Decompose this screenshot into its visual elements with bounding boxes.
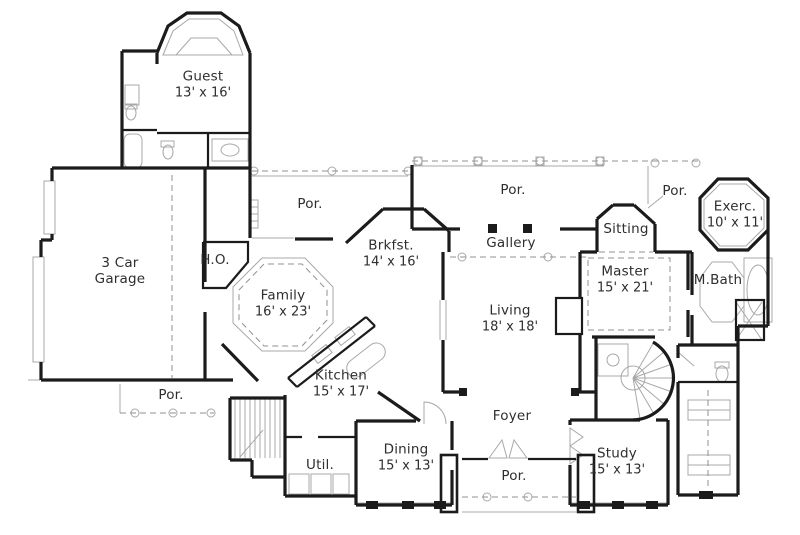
room-name: Dining [378, 442, 434, 458]
room-name: Living [482, 303, 538, 319]
room-dims: 15' x 13' [589, 462, 645, 477]
room-label-guest: Guest 13' x 16' [175, 69, 231, 100]
fireplace-icon [556, 298, 582, 334]
room-name: Foyer [493, 409, 531, 425]
room-dims: 13' x 16' [175, 85, 231, 100]
room-dims: 18' x 18' [482, 319, 538, 334]
closet-shelves [678, 352, 730, 475]
room-name: H.O. [200, 253, 229, 269]
room-dims: 14' x 16' [363, 254, 419, 269]
room-name: Por. [501, 469, 526, 485]
room-label-family: Family 16' x 23' [255, 288, 311, 319]
room-label-porch-top: Por. [500, 183, 525, 199]
room-dims: 15' x 17' [313, 384, 369, 399]
room-label-porch-bottom-left: Por. [158, 388, 183, 404]
family-walls [222, 344, 258, 381]
room-label-porch-entry: Por. [501, 469, 526, 485]
room-name: Por. [662, 184, 687, 200]
room-label-living: Living 18' x 18' [482, 303, 538, 334]
room-name: Guest [175, 69, 231, 85]
room-name: Sitting [603, 222, 648, 238]
room-label-sitting: Sitting [603, 222, 648, 238]
room-label-breakfast: Brkfst. 14' x 16' [363, 238, 419, 269]
room-label-foyer: Foyer [493, 409, 531, 425]
room-label-dining: Dining 15' x 13' [378, 442, 434, 473]
room-name: Gallery [486, 236, 535, 252]
door-swing-icon [424, 402, 446, 424]
room-dims: 15' x 21' [597, 280, 653, 295]
shower-x [736, 302, 762, 340]
room-name: Brkfst. [363, 238, 419, 254]
room-name: Util. [306, 458, 334, 474]
room-label-garage: 3 Car Garage [85, 256, 155, 288]
room-name: Family [255, 288, 311, 304]
guest-turret-inner [163, 19, 243, 55]
room-name: Master [597, 264, 653, 280]
room-label-utility: Util. [306, 458, 334, 474]
room-name: M.Bath [694, 273, 743, 289]
room-name: Por. [500, 183, 525, 199]
room-name: Por. [297, 197, 322, 213]
garage-door-icons [28, 181, 55, 380]
utility-walls [230, 395, 356, 496]
room-label-kitchen: Kitchen 15' x 17' [313, 368, 369, 399]
room-name: Exerc. [707, 199, 763, 215]
room-name: Kitchen [313, 368, 369, 384]
room-label-porch-left: Por. [297, 197, 322, 213]
room-dims: 16' x 23' [255, 304, 311, 319]
room-name: Study [589, 446, 645, 462]
room-label-master: Master 15' x 21' [597, 264, 653, 295]
guest-walls [122, 13, 250, 238]
mbath-inner-octagon [700, 262, 744, 322]
room-label-exercise: Exerc. 10' x 11' [707, 199, 763, 230]
room-label-study: Study 15' x 13' [589, 446, 645, 477]
washer-dryer-icons [289, 474, 349, 494]
room-label-master-bath: M.Bath [694, 273, 743, 289]
room-name: Por. [158, 388, 183, 404]
window-icon [440, 300, 446, 340]
room-label-gallery: Gallery [486, 236, 535, 252]
straight-staircase [235, 399, 280, 458]
room-dims: 15' x 13' [378, 458, 434, 473]
floorplan-canvas: Guest 13' x 16' 3 Car Garage H.O. Por. B… [0, 0, 800, 535]
room-name: 3 Car Garage [85, 256, 155, 288]
room-label-ho: H.O. [200, 253, 229, 269]
room-label-porch-top-right: Por. [662, 184, 687, 200]
toilet-icon [715, 362, 729, 382]
room-dims: 10' x 11' [707, 215, 763, 230]
